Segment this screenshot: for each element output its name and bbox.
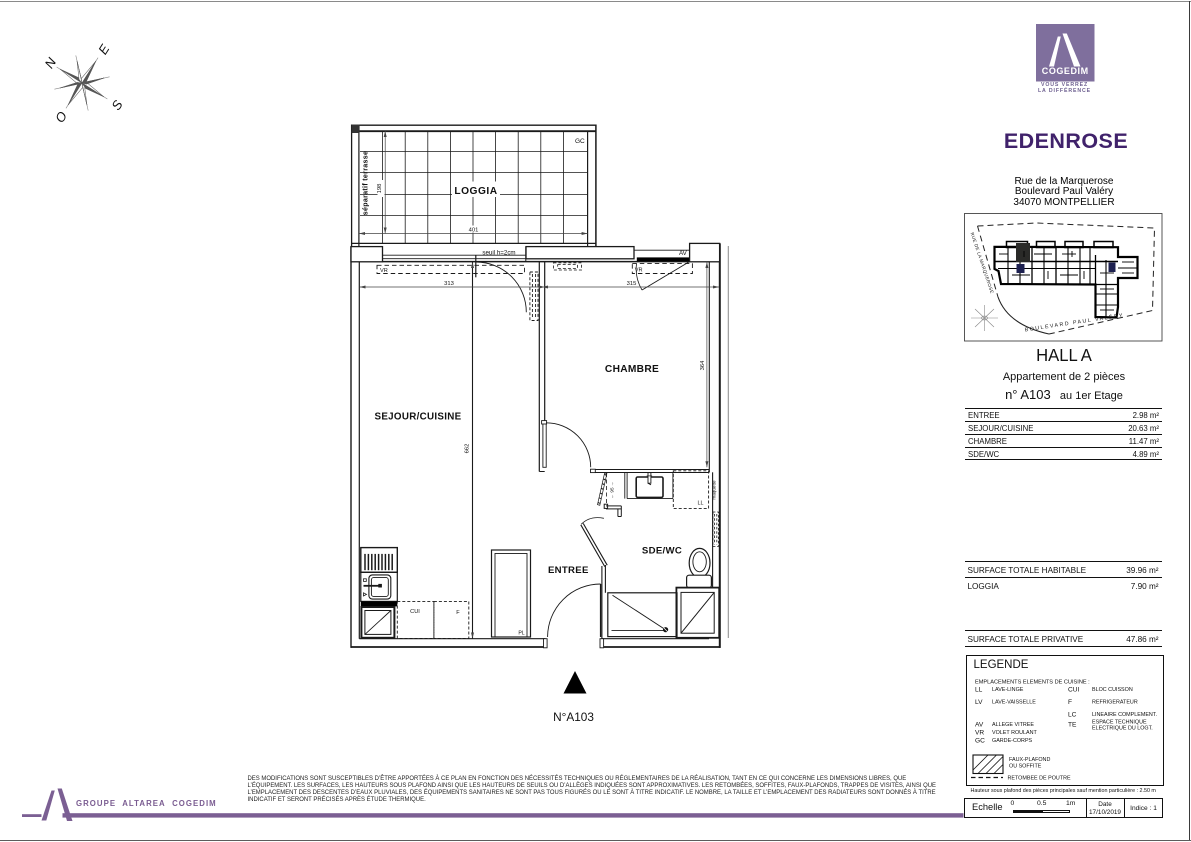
- svg-text:OU SOFFITE: OU SOFFITE: [1009, 763, 1042, 769]
- svg-text:662: 662: [464, 444, 470, 454]
- svg-text:GC: GC: [975, 737, 985, 744]
- svg-text:AV: AV: [679, 250, 688, 257]
- svg-text:LL: LL: [975, 686, 983, 693]
- svg-text:GC: GC: [575, 138, 585, 145]
- svg-text:315: 315: [627, 281, 637, 287]
- svg-text:F: F: [456, 610, 460, 616]
- svg-text:CHAMBRE: CHAMBRE: [605, 364, 659, 375]
- svg-text:LC: LC: [1068, 711, 1077, 718]
- svg-text:maquette: maquette: [712, 480, 717, 500]
- svg-text:FAUX-PLAFOND: FAUX-PLAFOND: [1009, 757, 1050, 763]
- svg-text:SDE/WC: SDE/WC: [642, 546, 682, 557]
- svg-text:198: 198: [377, 184, 383, 194]
- svg-text:EMPLACEMENTS ELEMENTS DE CUISI: EMPLACEMENTS ELEMENTS DE CUISINE :: [975, 679, 1090, 685]
- svg-text:AV: AV: [975, 721, 984, 728]
- svg-text:REFRIGERATEUR: REFRIGERATEUR: [1092, 699, 1138, 705]
- svg-text:séparatif terrasse: séparatif terrasse: [361, 151, 369, 216]
- svg-text:LOGGIA: LOGGIA: [454, 186, 497, 197]
- svg-text:ELECTRIQUE DU LOGT.: ELECTRIQUE DU LOGT.: [1092, 725, 1153, 731]
- svg-text:F: F: [1068, 699, 1072, 706]
- svg-text:TE: TE: [1068, 721, 1077, 728]
- svg-text:S: S: [108, 97, 125, 113]
- svg-text:N: N: [41, 54, 59, 70]
- svg-text:LV: LV: [975, 699, 983, 706]
- svg-text:LL: LL: [698, 501, 704, 507]
- svg-text:313: 313: [444, 281, 454, 287]
- svg-text:LAVE-VAISSELLE: LAVE-VAISSELLE: [992, 699, 1036, 705]
- svg-text:N°A103: N°A103: [553, 710, 594, 724]
- svg-text:GARDE-CORPS: GARDE-CORPS: [992, 738, 1033, 744]
- svg-text:CUI: CUI: [410, 609, 420, 615]
- svg-text:401: 401: [469, 228, 479, 234]
- svg-text:ENTREE: ENTREE: [548, 565, 589, 576]
- svg-text:VR: VR: [380, 268, 388, 274]
- svg-text:ALLEGE VITREE: ALLEGE VITREE: [992, 722, 1034, 728]
- svg-text:SEJOUR/CUISINE: SEJOUR/CUISINE: [375, 412, 462, 423]
- svg-text:PL: PL: [518, 631, 524, 637]
- svg-text:seuil h=2cm: seuil h=2cm: [482, 250, 515, 257]
- svg-text:BLOC CUISSON: BLOC CUISSON: [1092, 687, 1133, 693]
- svg-text:LAVE-LINGE: LAVE-LINGE: [992, 687, 1024, 693]
- svg-text:LINEAIRE COMPLEMENT.: LINEAIRE COMPLEMENT.: [1092, 712, 1157, 718]
- svg-text:364: 364: [700, 360, 706, 370]
- svg-text:CUI: CUI: [1068, 686, 1080, 693]
- svg-text:RETOMBEE DE POUTRE: RETOMBEE DE POUTRE: [1008, 775, 1072, 781]
- svg-text:VOLET ROULANT: VOLET ROULANT: [992, 730, 1038, 736]
- svg-text:E: E: [95, 42, 112, 58]
- svg-text:COGEDIM: COGEDIM: [1041, 66, 1088, 76]
- svg-text:VR: VR: [975, 729, 984, 736]
- svg-text:O: O: [52, 109, 70, 126]
- svg-text:← 95 →: ← 95 →: [610, 482, 615, 499]
